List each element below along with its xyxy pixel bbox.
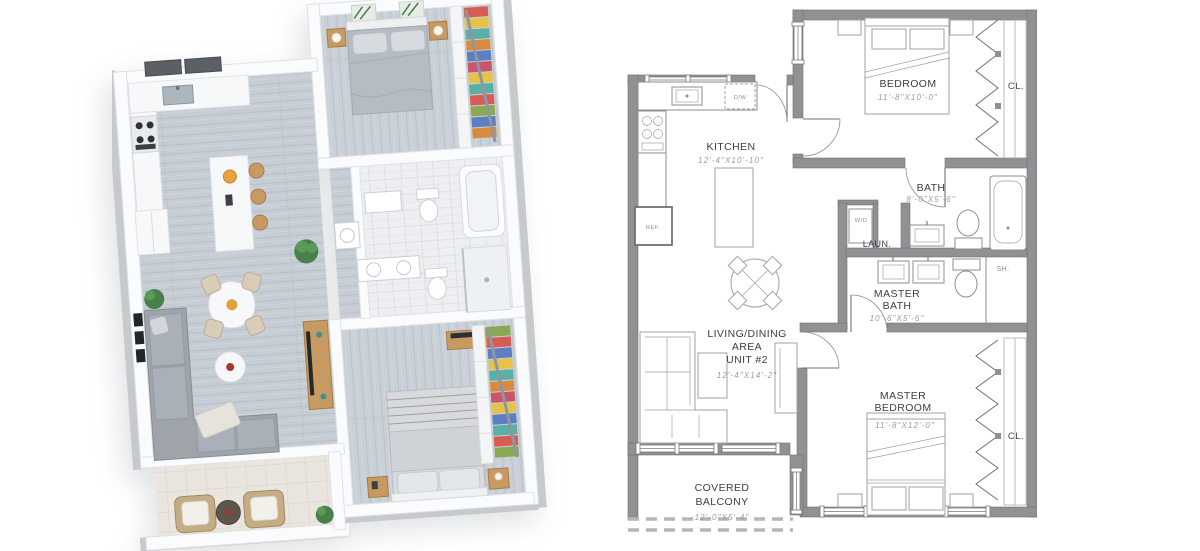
master-bath-dims: 10'-6"X5'-6" xyxy=(870,314,925,323)
wall-art xyxy=(399,1,424,19)
living-2d xyxy=(640,332,797,443)
vanity-sink xyxy=(913,257,944,283)
labels-2d: KITCHEN 12'-4"X10'-10" BEDROOM 11'-8"X10… xyxy=(646,78,1024,522)
bedroom-label: BEDROOM xyxy=(879,78,936,90)
master-bedroom-door xyxy=(802,332,839,368)
pillow xyxy=(439,468,480,491)
nightstand xyxy=(950,494,973,507)
master-bath-label-1: MASTER xyxy=(874,288,920,300)
pillow xyxy=(872,487,906,510)
dining-set-2d xyxy=(728,256,781,309)
kitchen-window-glass xyxy=(185,57,222,73)
living-label-1: LIVING/DINING xyxy=(707,328,786,340)
pillow xyxy=(910,29,944,49)
closet-top-label: CL. xyxy=(1008,81,1024,92)
window xyxy=(722,443,780,454)
bed-headboard xyxy=(865,18,949,26)
lamp xyxy=(332,33,342,43)
nightstand xyxy=(950,20,973,35)
washer-dryer-label: W/D xyxy=(855,218,867,224)
window xyxy=(792,22,804,64)
nightstand xyxy=(838,20,861,35)
bar-stool xyxy=(250,189,266,205)
vanity-sink xyxy=(878,257,909,283)
master-bedroom-dims: 11'-8"X12'-0" xyxy=(875,421,935,430)
closet-bottom-2d xyxy=(976,338,1026,505)
closet-bottom-label: CL. xyxy=(1008,431,1024,442)
living-label-3: UNIT #2 xyxy=(726,354,768,366)
wall-art xyxy=(351,4,376,22)
tv-console xyxy=(775,343,797,413)
bar-stool xyxy=(249,163,265,179)
vanity-3d xyxy=(364,191,401,213)
master-bath-label-2: BATH xyxy=(883,300,912,312)
bedroom-dims: 11'-8"X10'-0" xyxy=(878,93,938,102)
kitchen-label: KITCHEN xyxy=(707,141,756,153)
duvet-fold xyxy=(389,426,484,472)
balcony-label-2: BALCONY xyxy=(696,496,749,508)
nightstand xyxy=(838,494,862,507)
laundry-2d xyxy=(849,209,872,243)
vanity-sink xyxy=(910,221,944,246)
entry-door xyxy=(756,85,787,122)
pillow xyxy=(872,29,906,49)
floorplan-page: KITCHEN 12'-4"X10'-10" BEDROOM 11'-8"X10… xyxy=(0,0,1200,551)
pillow xyxy=(390,30,425,52)
toilet xyxy=(955,210,982,249)
pillow xyxy=(909,487,943,510)
balcony-label-1: COVERED xyxy=(695,482,750,494)
fruit-bowl xyxy=(223,170,237,184)
window xyxy=(791,468,802,514)
laundry-label: LAUN. xyxy=(863,239,892,249)
kitchen-window-glass xyxy=(145,60,182,76)
washer-dryer xyxy=(849,209,872,243)
window xyxy=(820,506,868,517)
floor-plan-3d xyxy=(112,0,572,551)
stove xyxy=(638,111,666,153)
lamp xyxy=(433,26,443,36)
floor-plan-2d: KITCHEN 12'-4"X10'-10" BEDROOM 11'-8"X10… xyxy=(625,0,1037,551)
balcony-dims: 12'-0"X5'-4" xyxy=(695,513,750,522)
window xyxy=(944,506,990,517)
island xyxy=(715,168,753,247)
living-dims: 12'-4"X14'-2" xyxy=(717,371,777,380)
bath-label: BATH xyxy=(917,182,946,194)
pillow xyxy=(397,471,438,494)
nightstand xyxy=(367,476,388,497)
bar-stool xyxy=(252,215,268,231)
dishwasher-label: D/W xyxy=(734,95,747,101)
washer-3d xyxy=(334,222,360,250)
bath-dims: 8'-0"X5'-6" xyxy=(906,195,955,204)
bedroom-door xyxy=(803,119,840,156)
master-bedroom-label-2: BEDROOM xyxy=(874,402,931,414)
window xyxy=(636,443,718,454)
pillow xyxy=(352,32,387,54)
shower-label: SH. xyxy=(997,266,1010,273)
master-bedroom-label-1: MASTER xyxy=(880,390,926,402)
kitchen-dims: 12'-4"X10'-10" xyxy=(698,156,764,165)
toilet-tank xyxy=(416,188,439,200)
living-label-2: AREA xyxy=(732,341,762,353)
fridge-label: REF. xyxy=(646,225,660,231)
apartment-3d xyxy=(112,0,548,551)
bathtub xyxy=(990,176,1026,250)
island-decor xyxy=(225,194,233,205)
toilet xyxy=(953,259,980,297)
